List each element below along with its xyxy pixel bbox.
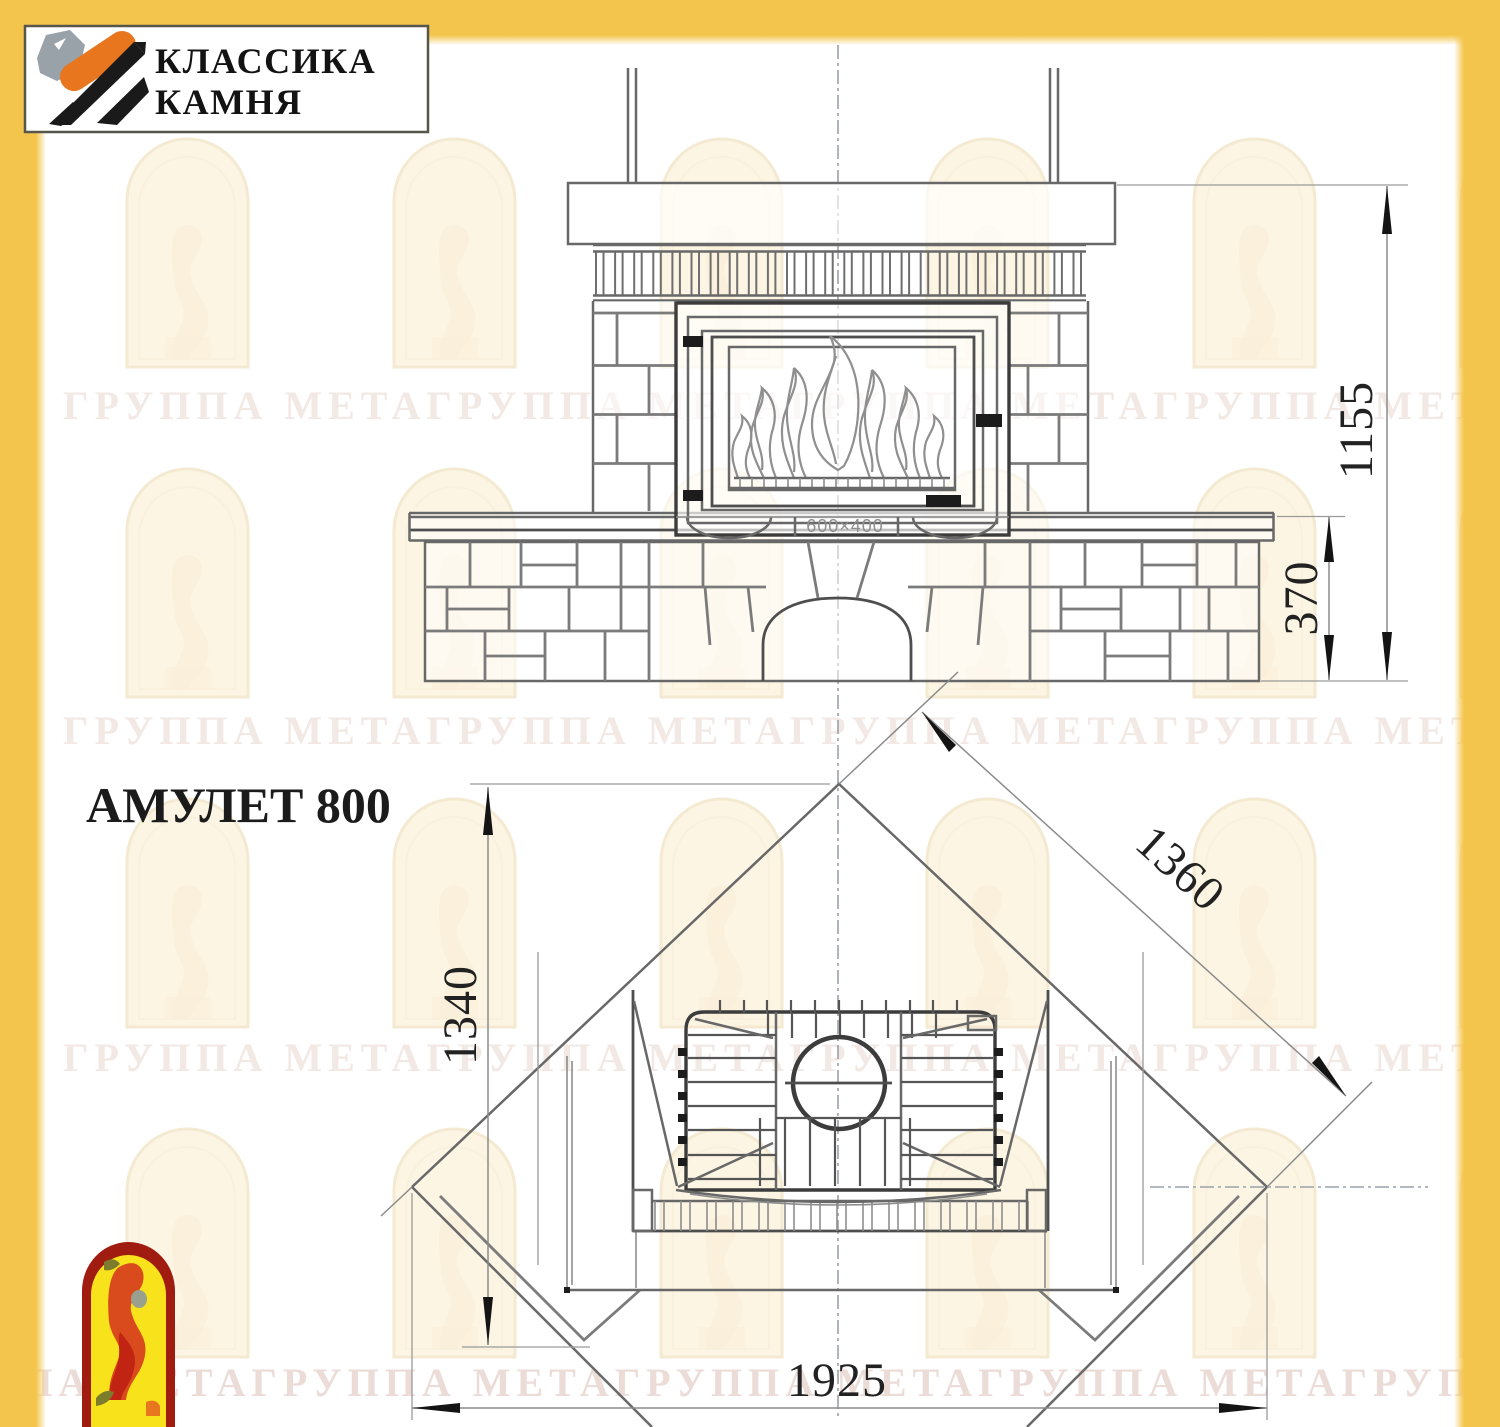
svg-text:ГРУППА МЕТАГРУППА МЕТАГРУППА М: ГРУППА МЕТАГРУППА МЕТАГРУППА МЕТАГРУППА …: [63, 1035, 1500, 1080]
svg-text:КАМНЯ: КАМНЯ: [155, 82, 303, 122]
svg-text:1155: 1155: [1330, 381, 1383, 479]
svg-text:ГРУППА МЕТАГРУППА МЕТАГРУППА М: ГРУППА МЕТАГРУППА МЕТАГРУППА МЕТАГРУППА …: [63, 708, 1500, 753]
svg-text:АМУЛЕТ 800: АМУЛЕТ 800: [86, 777, 391, 833]
svg-text:КЛАССИКА: КЛАССИКА: [155, 41, 376, 81]
svg-text:ГРУППА МЕТАГРУППА МЕТАГРУППА М: ГРУППА МЕТАГРУППА МЕТАГРУППА МЕТАГРУППА …: [0, 1360, 1500, 1405]
svg-text:1925: 1925: [787, 1354, 887, 1407]
svg-text:600×400: 600×400: [806, 516, 884, 536]
svg-text:1340: 1340: [434, 965, 487, 1065]
svg-text:370: 370: [1275, 561, 1328, 636]
